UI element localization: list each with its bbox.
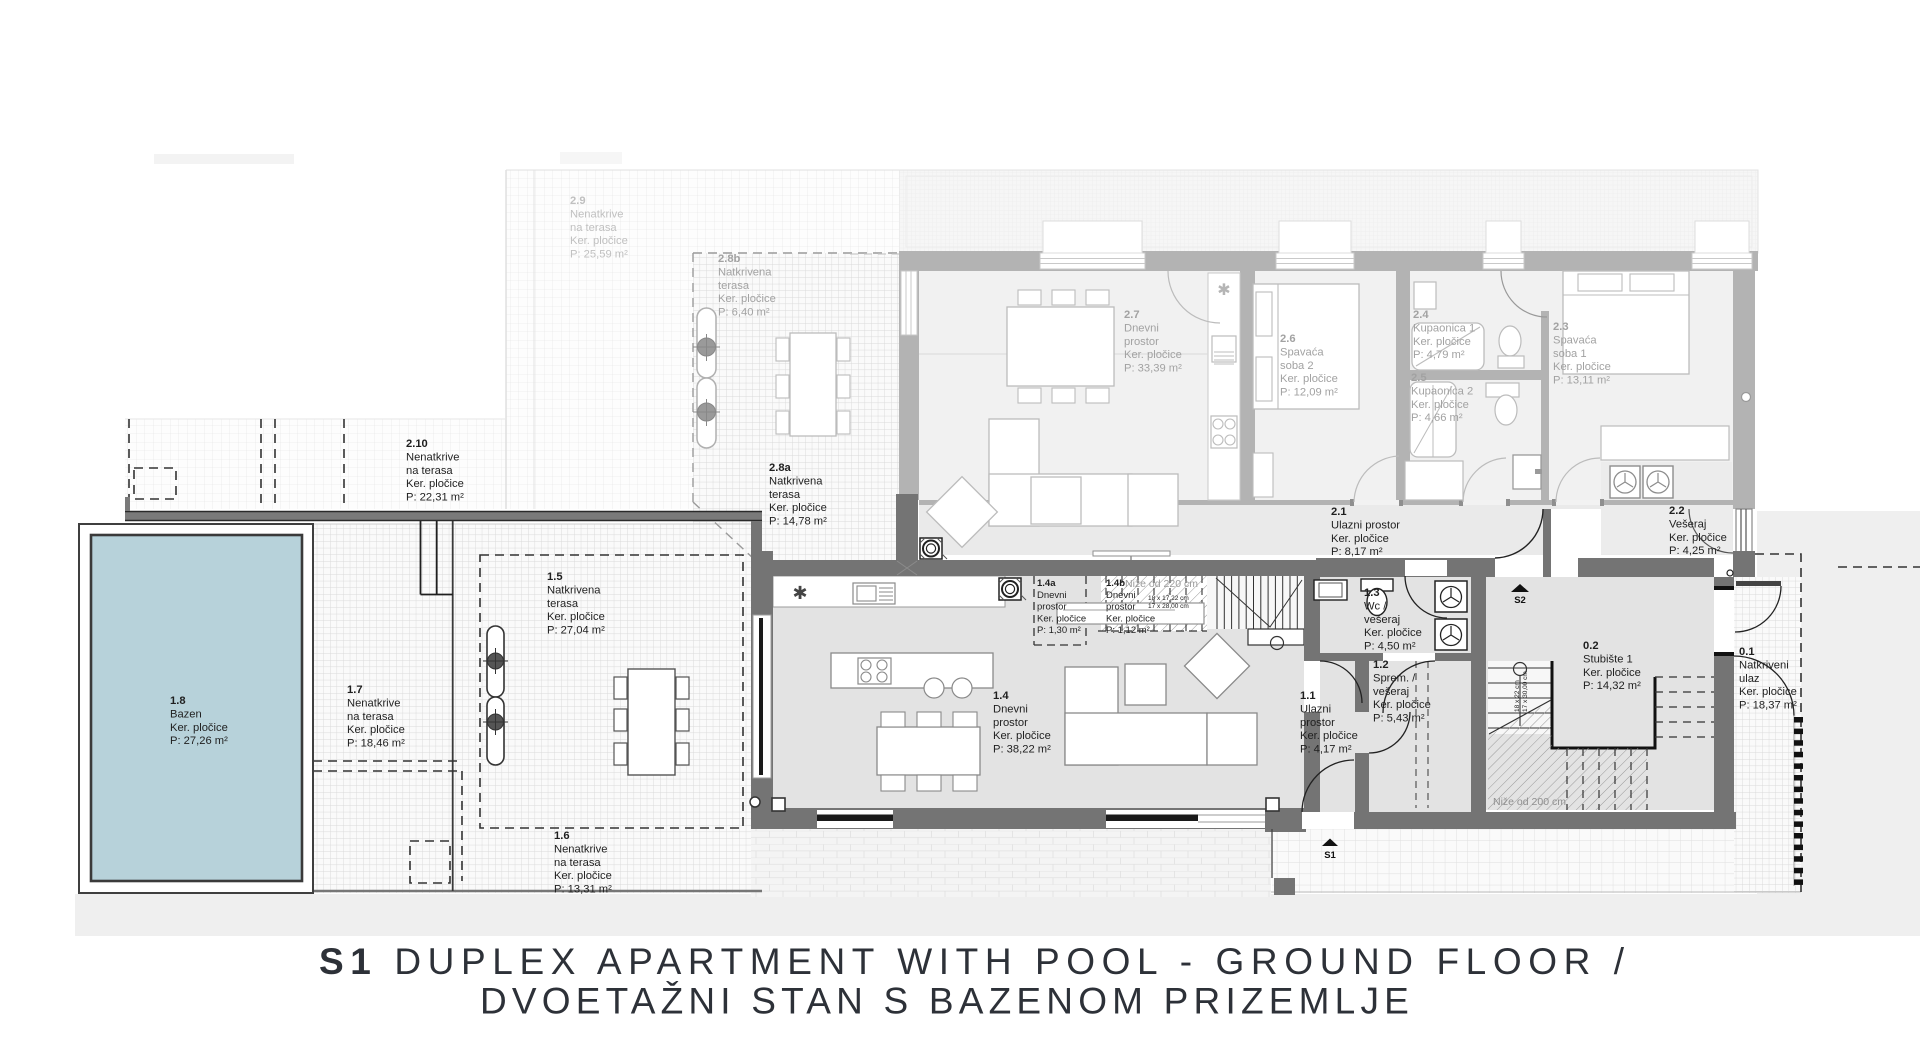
svg-text:S2: S2 [1514,595,1526,606]
svg-text:18 x 22 cm: 18 x 22 cm [1514,680,1521,712]
svg-text:18 x 17,22 cm: 18 x 17,22 cm [1148,595,1189,602]
svg-text:Niže od 220 cm: Niže od 220 cm [1125,578,1198,590]
svg-text:Niže od 200 cm: Niže od 200 cm [1493,796,1566,808]
svg-text:DVOETAŽNI STAN S BAZENOM PRIZE: DVOETAŽNI STAN S BAZENOM PRIZEMLJE [480,981,1414,1022]
svg-text:17 x 28,00 cm: 17 x 28,00 cm [1148,603,1189,610]
svg-text:17 x 30,00 cm: 17 x 30,00 cm [1522,671,1529,712]
svg-text:✱: ✱ [792,583,807,603]
svg-text:S1 DUPLEX APARTMENT WITH POOL: S1 DUPLEX APARTMENT WITH POOL - GROUND F… [319,941,1631,982]
svg-text:S1: S1 [1324,850,1336,861]
svg-text:✱: ✱ [1217,282,1230,299]
